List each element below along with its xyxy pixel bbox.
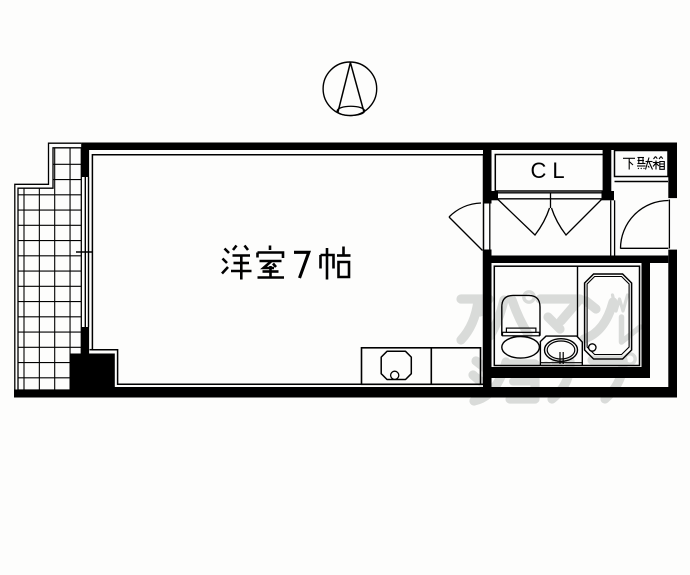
svg-text:CL: CL — [530, 158, 570, 183]
